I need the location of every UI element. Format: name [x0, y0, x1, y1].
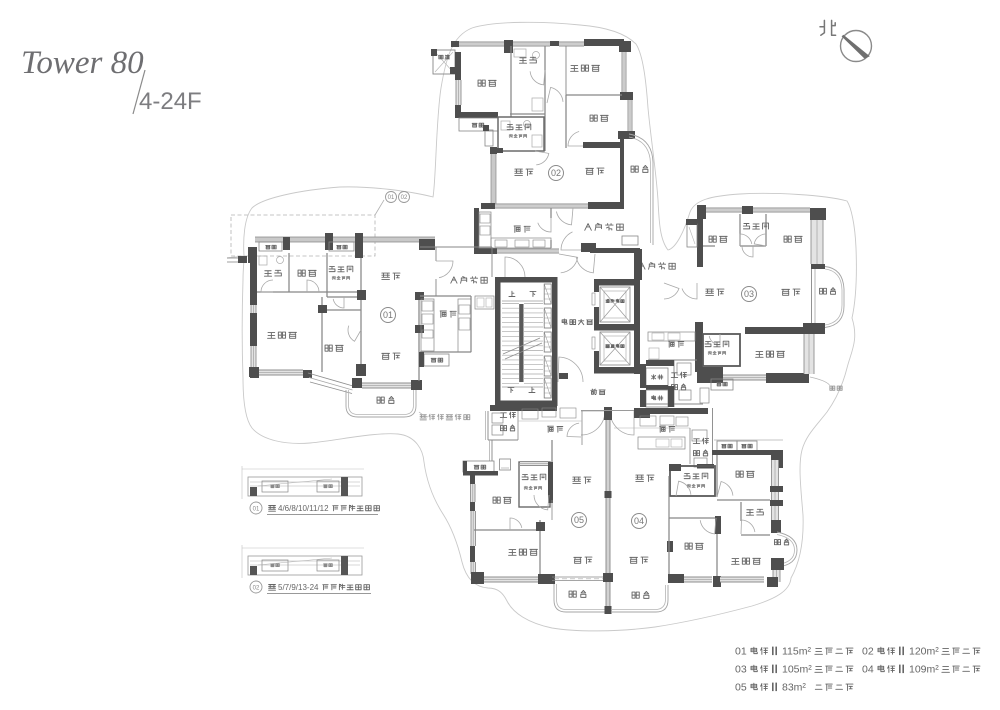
svg-text:109m²: 109m² [909, 664, 939, 676]
svg-text:04: 04 [634, 516, 644, 526]
svg-text:01: 01 [383, 310, 393, 320]
svg-text:01: 01 [253, 506, 260, 512]
svg-text:05: 05 [574, 515, 584, 525]
svg-text:02: 02 [401, 195, 408, 201]
svg-text:115m²: 115m² [782, 646, 811, 658]
svg-text:04: 04 [862, 664, 874, 676]
svg-text:5/7/9/13-24: 5/7/9/13-24 [278, 583, 319, 592]
svg-text:83m²: 83m² [782, 682, 806, 694]
svg-text:02: 02 [253, 585, 260, 591]
svg-text:105m²: 105m² [782, 664, 812, 676]
svg-text:03: 03 [735, 664, 747, 676]
svg-text:03: 03 [744, 289, 754, 299]
svg-text:05: 05 [735, 682, 747, 694]
svg-text:02: 02 [862, 646, 874, 658]
svg-text:120m²: 120m² [909, 646, 939, 658]
svg-text:4-24F: 4-24F [139, 88, 202, 115]
svg-text:02: 02 [551, 168, 561, 178]
svg-text:4/6/8/10/11/12: 4/6/8/10/11/12 [278, 504, 329, 513]
svg-text:01: 01 [388, 195, 395, 201]
svg-text:Tower 80: Tower 80 [21, 45, 144, 81]
svg-text:01: 01 [735, 646, 747, 658]
